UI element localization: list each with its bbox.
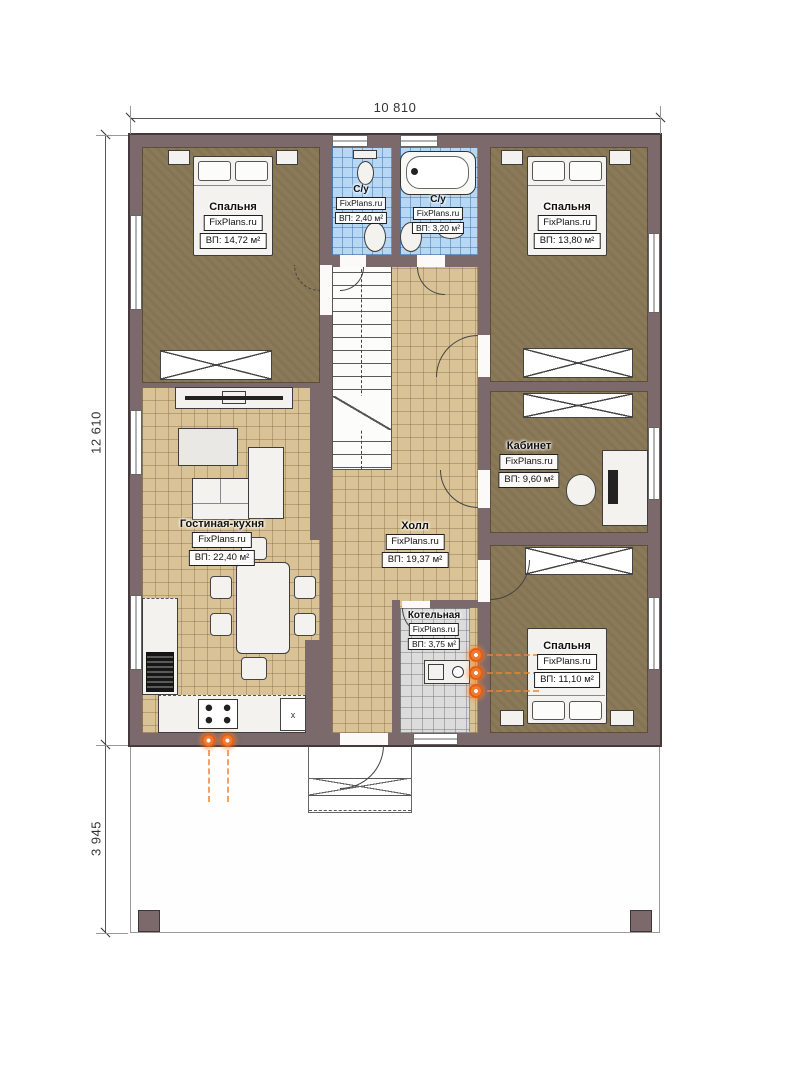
wardrobe xyxy=(160,350,272,380)
sink xyxy=(364,222,386,252)
room-label-bedroom-top-right: Спальня FixPlans.ru ВП: 13,80 м² xyxy=(534,201,601,249)
porch-step-edge xyxy=(309,795,411,796)
dimension-height-main: 12 610 xyxy=(89,405,104,461)
room-name: Кабинет xyxy=(507,440,552,452)
stairs-landing-break xyxy=(333,396,391,430)
dimension-height-terrace: 3 945 xyxy=(89,811,104,867)
watermark: FixPlans.ru xyxy=(203,215,263,231)
coffee-table xyxy=(178,428,238,466)
room-label-living-kitchen: Гостиная-кухня FixPlans.ru ВП: 22,40 м² xyxy=(180,518,264,566)
door-opening xyxy=(320,265,332,315)
room-name: Спальня xyxy=(543,201,591,213)
bathtub xyxy=(400,151,476,195)
pillow xyxy=(532,161,565,181)
radiator-pipe xyxy=(208,750,210,802)
door-opening xyxy=(340,255,366,267)
chair xyxy=(210,576,232,599)
window xyxy=(130,595,142,670)
room-area: ВП: 11,10 м² xyxy=(534,672,600,688)
wall-segment xyxy=(320,315,332,387)
extension-line xyxy=(96,745,128,746)
radiator xyxy=(469,666,483,680)
room-area: ВП: 9,60 м² xyxy=(498,472,559,488)
pillow xyxy=(569,701,602,720)
wall-segment xyxy=(430,600,478,608)
nightstand xyxy=(276,150,298,165)
door-opening xyxy=(417,255,445,267)
sofa-chaise xyxy=(248,447,284,519)
nightstand xyxy=(501,150,523,165)
window xyxy=(332,135,368,147)
room-label-bathroom-right: С/у FixPlans.ru ВП: 3,20 м² xyxy=(412,194,464,234)
door-opening xyxy=(478,335,490,377)
window xyxy=(130,410,142,475)
extension-line xyxy=(130,106,131,134)
room-label-bedroom-top-left: Спальня FixPlans.ru ВП: 14,72 м² xyxy=(200,201,267,249)
door-opening xyxy=(402,601,430,608)
window xyxy=(413,733,458,745)
wardrobe xyxy=(525,547,633,575)
room-area: ВП: 14,72 м² xyxy=(200,233,267,249)
room-name: Гостиная-кухня xyxy=(180,518,264,530)
room-area: ВП: 3,20 м² xyxy=(412,222,464,235)
watermark: FixPlans.ru xyxy=(499,454,559,470)
wall-segment xyxy=(478,508,490,560)
nightstand xyxy=(500,710,524,726)
dimension-line-top xyxy=(130,118,660,119)
boiler-unit-panel xyxy=(428,664,444,680)
stove xyxy=(198,699,238,729)
room-label-hall: Холл FixPlans.ru ВП: 19,37 м² xyxy=(382,520,449,568)
office-chair xyxy=(566,474,596,506)
entrance-door-opening xyxy=(340,733,388,745)
chair xyxy=(241,657,267,680)
wall-segment xyxy=(305,640,322,733)
toilet-tank xyxy=(353,150,377,159)
room-label-bathroom-left: С/у FixPlans.ru ВП: 2,40 м² xyxy=(335,184,387,224)
bathtub-drain xyxy=(411,168,418,175)
room-name: Холл xyxy=(401,520,429,532)
room-area: ВП: 13,80 м² xyxy=(534,233,601,249)
watermark: FixPlans.ru xyxy=(385,534,445,550)
room-area: ВП: 22,40 м² xyxy=(189,550,256,566)
appliance: x xyxy=(280,698,306,731)
wall-segment xyxy=(392,147,400,255)
room-name: Спальня xyxy=(209,201,257,213)
room-name: С/у xyxy=(430,194,446,205)
sofa xyxy=(192,478,250,520)
wardrobe xyxy=(523,348,633,378)
window xyxy=(648,233,660,313)
porch-step-edge xyxy=(309,810,411,811)
radiator xyxy=(469,648,483,662)
wall-segment xyxy=(310,387,330,540)
window xyxy=(648,427,660,500)
watermark: FixPlans.ru xyxy=(413,207,464,220)
door-opening xyxy=(478,560,490,602)
radiator-pipe xyxy=(227,750,229,802)
wall-segment xyxy=(332,255,340,267)
monitor xyxy=(608,470,618,504)
extension-line xyxy=(96,933,128,934)
room-label-office: Кабинет FixPlans.ru ВП: 9,60 м² xyxy=(498,440,559,488)
chair xyxy=(294,576,316,599)
blanket-fold xyxy=(194,185,271,186)
dimension-line-left-main xyxy=(105,135,106,745)
dining-table xyxy=(236,562,290,654)
wall-segment xyxy=(478,377,490,470)
radiator xyxy=(221,734,234,747)
radiator xyxy=(202,734,215,747)
wall-segment xyxy=(490,382,648,391)
room-area: ВП: 2,40 м² xyxy=(335,212,387,225)
dimension-width-total: 10 810 xyxy=(345,100,445,115)
wall-segment xyxy=(490,533,648,545)
stairs-walk-line xyxy=(361,259,362,469)
wardrobe xyxy=(523,393,633,418)
room-name: Спальня xyxy=(543,640,591,652)
room-name: Котельная xyxy=(408,610,460,621)
watermark: FixPlans.ru xyxy=(192,532,252,548)
nightstand xyxy=(168,150,190,165)
wall-segment xyxy=(478,147,490,335)
pillow xyxy=(569,161,602,181)
wall-segment xyxy=(320,147,332,265)
blanket-fold xyxy=(528,185,605,186)
appliance-marker: x xyxy=(291,710,296,720)
window xyxy=(400,135,438,147)
toilet xyxy=(357,161,374,185)
window xyxy=(648,597,660,670)
watermark: FixPlans.ru xyxy=(409,623,460,636)
radiator-pipe xyxy=(487,672,539,674)
blanket-fold xyxy=(528,695,605,696)
chair xyxy=(294,613,316,636)
room-area: ВП: 3,75 м² xyxy=(408,638,460,651)
dimension-line-left-terrace xyxy=(105,745,106,933)
wall-segment xyxy=(392,600,400,733)
wall-segment xyxy=(445,255,478,267)
terrace-column xyxy=(138,910,160,932)
floor-plan: 10 810 12 610 3 945 xyxy=(0,0,792,1080)
terrace-column xyxy=(630,910,652,932)
sofa-cushion-line xyxy=(220,479,221,503)
extension-line xyxy=(660,106,661,134)
kitchen-sink xyxy=(146,652,174,692)
room-label-boiler-room: Котельная FixPlans.ru ВП: 3,75 м² xyxy=(408,610,460,650)
radiator xyxy=(469,684,483,698)
watermark: FixPlans.ru xyxy=(336,197,387,210)
pillow xyxy=(198,161,231,181)
pillow xyxy=(532,701,565,720)
watermark: FixPlans.ru xyxy=(537,215,597,231)
pillow xyxy=(235,161,268,181)
nightstand xyxy=(610,710,634,726)
boiler-burner xyxy=(452,666,464,678)
chair xyxy=(210,613,232,636)
wall-segment xyxy=(366,255,417,267)
extension-line xyxy=(96,135,128,136)
window xyxy=(130,215,142,310)
radiator-pipe xyxy=(487,654,539,656)
tv xyxy=(185,396,283,400)
watermark: FixPlans.ru xyxy=(537,654,597,670)
radiator-pipe xyxy=(487,690,539,692)
sofa-seat-line xyxy=(193,503,249,504)
room-label-bedroom-bottom-right: Спальня FixPlans.ru ВП: 11,10 м² xyxy=(534,640,600,688)
nightstand xyxy=(609,150,631,165)
room-area: ВП: 19,37 м² xyxy=(382,552,449,568)
door-opening xyxy=(478,470,490,508)
room-name: С/у xyxy=(353,184,369,195)
